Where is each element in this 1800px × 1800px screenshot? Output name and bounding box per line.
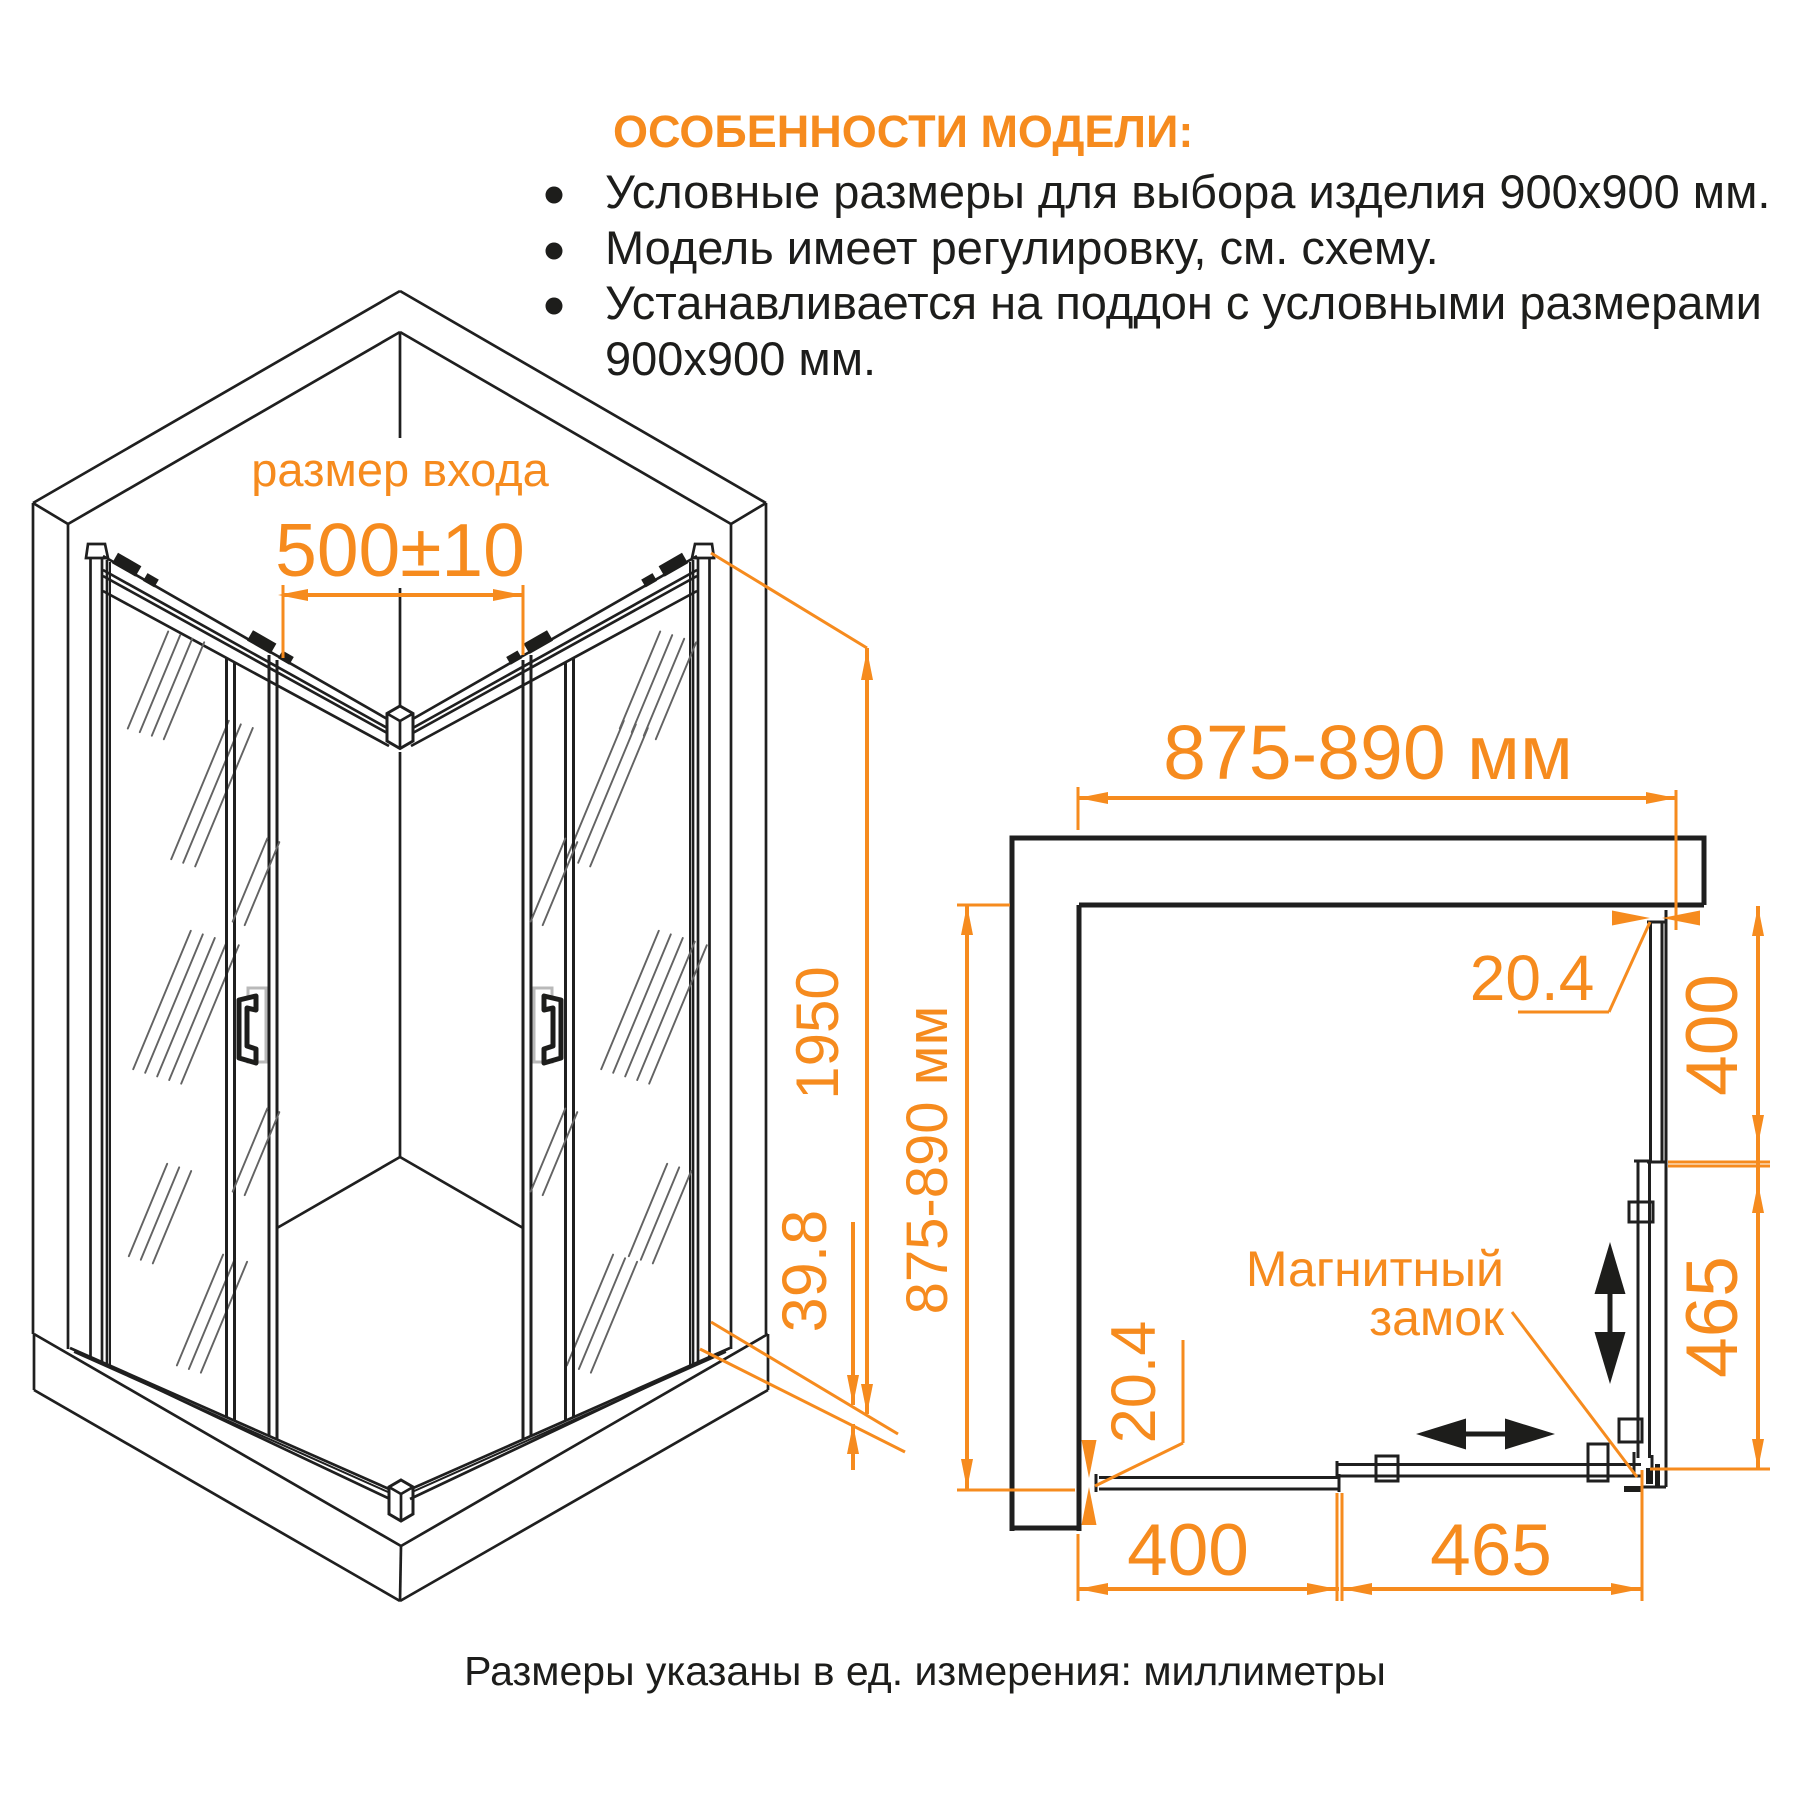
svg-text:Устанавливается на поддон с ус: Устанавливается на поддон с условными ра… (605, 276, 1762, 329)
svg-text:Магнитный: Магнитный (1246, 1241, 1504, 1297)
svg-text:ОСОБЕННОСТИ МОДЕЛИ:: ОСОБЕННОСТИ МОДЕЛИ: (613, 106, 1193, 157)
svg-text:500±10: 500±10 (275, 508, 525, 592)
svg-text:20.4: 20.4 (1470, 942, 1595, 1014)
svg-text:875-890 мм: 875-890 мм (1163, 710, 1573, 796)
svg-text:Модель имеет регулировку, см.: Модель имеет регулировку, см. схему. (605, 221, 1439, 274)
svg-text:400: 400 (1127, 1510, 1249, 1591)
svg-text:Условные размеры для выбора из: Условные размеры для выбора изделия 900х… (605, 165, 1770, 218)
svg-text:1950: 1950 (784, 966, 851, 1099)
svg-text:20.4: 20.4 (1099, 1321, 1169, 1444)
svg-text:размер входа: размер входа (251, 443, 549, 496)
svg-text:39.8: 39.8 (770, 1210, 840, 1333)
svg-text:400: 400 (1672, 974, 1753, 1096)
svg-text:замок: замок (1369, 1290, 1505, 1346)
svg-text:875-890 мм: 875-890 мм (895, 1006, 960, 1315)
svg-text:465: 465 (1672, 1256, 1753, 1378)
svg-text:465: 465 (1430, 1510, 1552, 1591)
svg-text:Размеры указаны в ед. измерени: Размеры указаны в ед. измерения: миллиме… (464, 1648, 1386, 1694)
svg-text:900х900 мм.: 900х900 мм. (605, 332, 876, 385)
